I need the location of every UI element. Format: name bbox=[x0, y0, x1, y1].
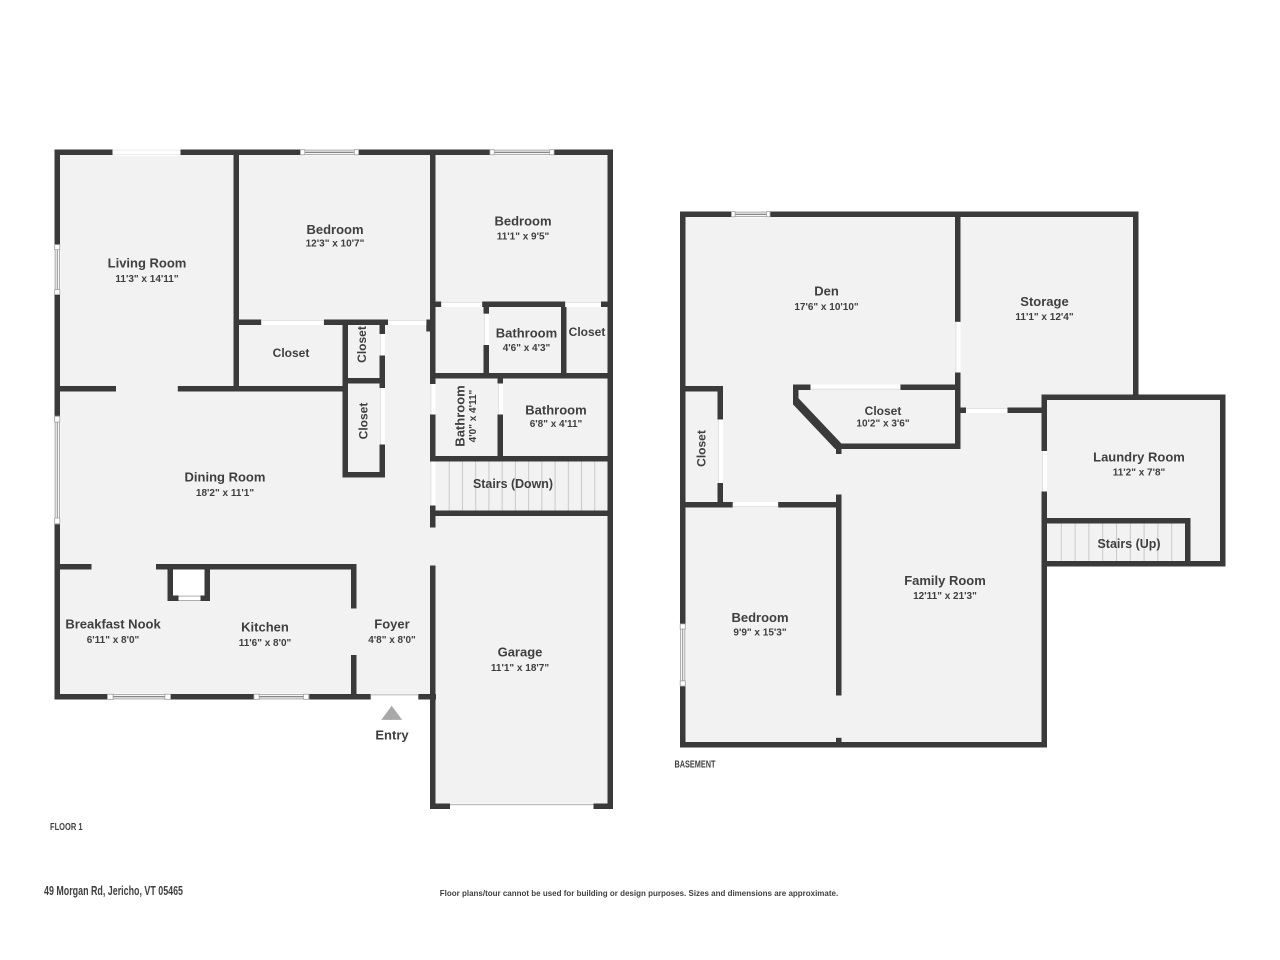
svg-text:11'1" x 18'7": 11'1" x 18'7" bbox=[491, 663, 549, 674]
svg-text:Laundry Room: Laundry Room bbox=[1093, 450, 1185, 465]
svg-text:Bedroom: Bedroom bbox=[494, 214, 551, 229]
svg-text:Closet: Closet bbox=[357, 403, 371, 440]
svg-text:Bathroom: Bathroom bbox=[525, 403, 586, 418]
svg-text:Storage: Storage bbox=[1020, 294, 1068, 309]
svg-text:12'11" x 21'3": 12'11" x 21'3" bbox=[913, 591, 977, 602]
svg-text:Bathroom: Bathroom bbox=[496, 326, 557, 341]
svg-text:11'3" x 14'11": 11'3" x 14'11" bbox=[115, 274, 178, 285]
svg-text:10'2" x 3'6": 10'2" x 3'6" bbox=[856, 419, 909, 430]
svg-text:Closet: Closet bbox=[569, 325, 606, 339]
svg-text:11'1" x 9'5": 11'1" x 9'5" bbox=[497, 232, 550, 243]
svg-text:Stairs (Up): Stairs (Up) bbox=[1098, 537, 1161, 551]
svg-text:Closet: Closet bbox=[695, 430, 709, 467]
svg-text:4'8" x 8'0": 4'8" x 8'0" bbox=[368, 635, 416, 646]
svg-text:18'2" x 11'1": 18'2" x 11'1" bbox=[196, 488, 254, 499]
svg-text:Entry: Entry bbox=[375, 728, 409, 743]
svg-text:Closet: Closet bbox=[355, 326, 369, 363]
svg-text:49 Morgan Rd, Jericho, VT 0546: 49 Morgan Rd, Jericho, VT 05465 bbox=[44, 884, 183, 898]
svg-text:12'3" x 10'7": 12'3" x 10'7" bbox=[306, 239, 365, 250]
svg-text:Bedroom: Bedroom bbox=[306, 222, 363, 237]
svg-text:9'9" x 15'3": 9'9" x 15'3" bbox=[733, 628, 786, 639]
svg-text:Family Room: Family Room bbox=[904, 573, 986, 588]
svg-text:BASEMENT: BASEMENT bbox=[675, 760, 716, 771]
svg-text:11'6" x 8'0": 11'6" x 8'0" bbox=[239, 638, 292, 649]
svg-text:Stairs (Down): Stairs (Down) bbox=[473, 477, 553, 491]
svg-text:6'11" x 8'0": 6'11" x 8'0" bbox=[87, 635, 140, 646]
svg-text:Dining Room: Dining Room bbox=[185, 470, 266, 485]
svg-text:4'0" x 4'11": 4'0" x 4'11" bbox=[468, 389, 479, 442]
svg-text:FLOOR 1: FLOOR 1 bbox=[50, 822, 83, 833]
svg-text:Kitchen: Kitchen bbox=[241, 620, 289, 635]
svg-text:Floor plans/tour cannot be use: Floor plans/tour cannot be used for buil… bbox=[440, 889, 838, 898]
svg-text:17'6" x 10'10": 17'6" x 10'10" bbox=[794, 302, 859, 313]
svg-text:Foyer: Foyer bbox=[374, 617, 409, 632]
svg-text:Bathroom: Bathroom bbox=[452, 385, 467, 446]
svg-text:Garage: Garage bbox=[498, 645, 543, 660]
svg-text:Bedroom: Bedroom bbox=[731, 610, 788, 625]
svg-text:11'1" x 12'4": 11'1" x 12'4" bbox=[1015, 312, 1073, 323]
svg-text:11'2" x 7'8": 11'2" x 7'8" bbox=[1113, 468, 1166, 479]
svg-text:Living Room: Living Room bbox=[108, 256, 187, 271]
svg-text:Breakfast Nook: Breakfast Nook bbox=[65, 617, 161, 632]
svg-text:6'8" x 4'11": 6'8" x 4'11" bbox=[530, 419, 583, 430]
svg-text:4'6" x 4'3": 4'6" x 4'3" bbox=[503, 343, 551, 354]
svg-text:Den: Den bbox=[814, 284, 839, 299]
svg-text:Closet: Closet bbox=[273, 346, 310, 360]
svg-text:Closet: Closet bbox=[865, 404, 902, 418]
